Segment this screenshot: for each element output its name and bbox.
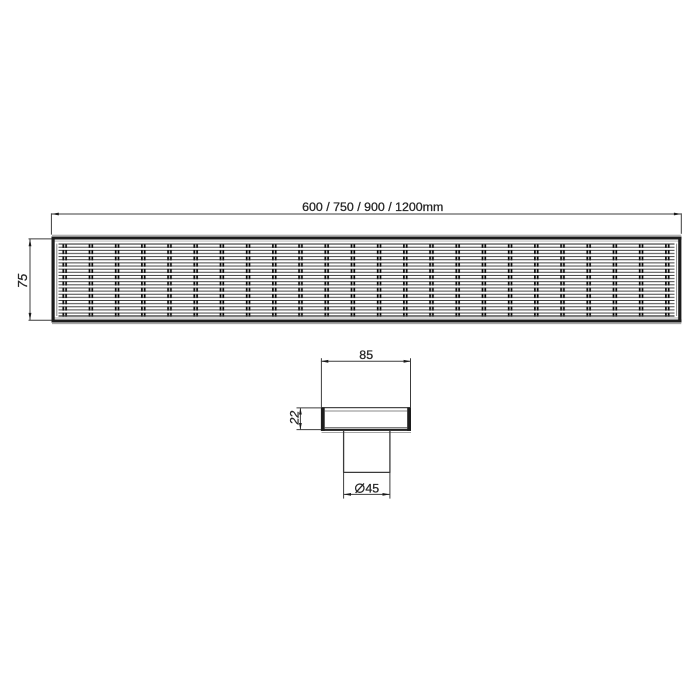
svg-text:600 / 750 / 900 / 1200mm: 600 / 750 / 900 / 1200mm <box>302 200 443 214</box>
svg-text:75: 75 <box>15 273 30 288</box>
svg-text:45: 45 <box>365 482 379 496</box>
svg-text:85: 85 <box>359 348 373 362</box>
